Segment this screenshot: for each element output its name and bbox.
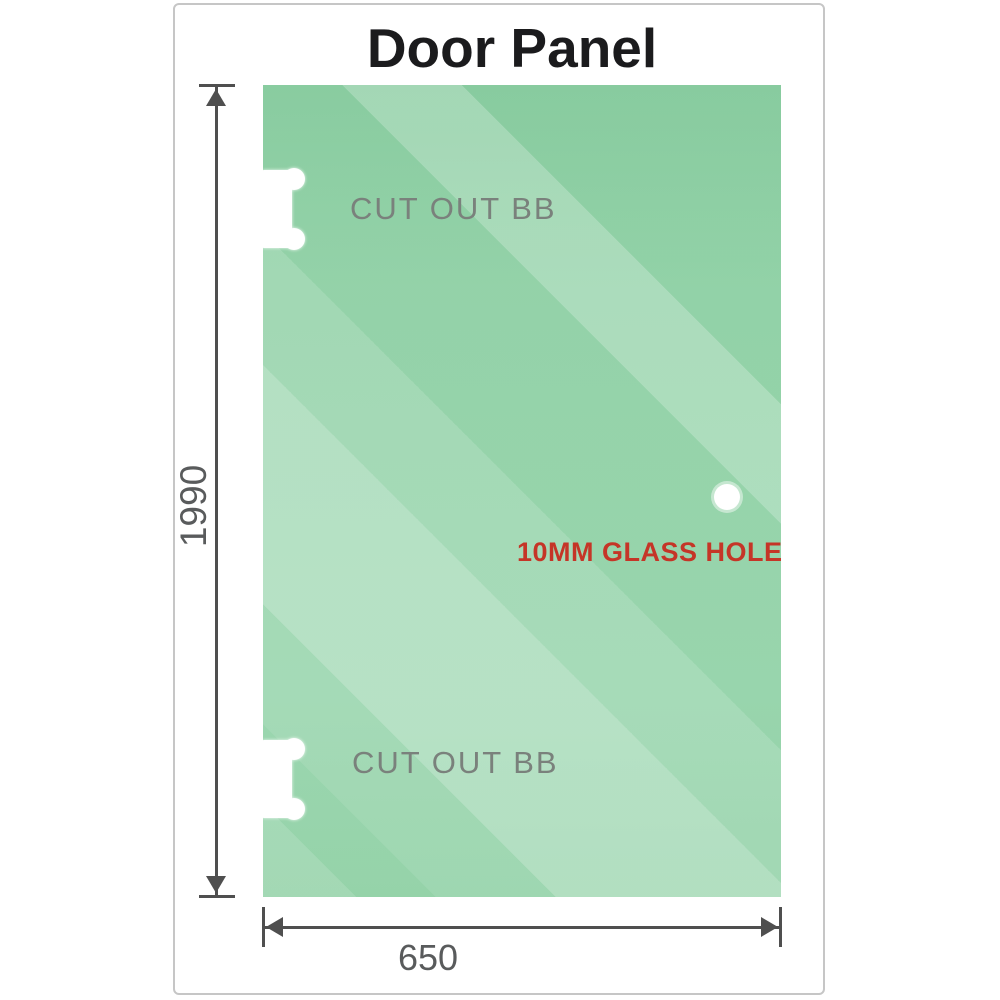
- hinge-cutout-top-icon: [263, 166, 309, 252]
- glass-hole-label: 10MM GLASS HOLE: [517, 537, 781, 568]
- height-dimension-label: 1990: [173, 436, 215, 576]
- height-dimension-bottom-tick: [199, 895, 235, 898]
- height-dimension-line: [215, 85, 218, 897]
- arrow-down-icon: [206, 876, 226, 893]
- width-dimension-left-tick: [262, 907, 265, 947]
- height-dimension-top-tick: [199, 84, 235, 87]
- width-dimension: 650: [263, 907, 781, 967]
- width-dimension-right-tick: [779, 907, 782, 947]
- glass-panel: CUT OUT BB CUT OUT BB 10MM GLASS HOLE: [263, 85, 781, 897]
- arrow-left-icon: [266, 917, 283, 937]
- glass-hole-icon: [714, 484, 740, 510]
- hinge-cutout-bottom-icon: [263, 736, 309, 822]
- page-title: Door Panel: [173, 18, 827, 79]
- cutout-top-label: CUT OUT BB: [350, 191, 557, 227]
- cutout-bottom-label: CUT OUT BB: [352, 745, 559, 781]
- door-panel-diagram: Door Panel CUT OUT BB CUT OUT BB 10MM GL…: [0, 0, 1000, 1000]
- width-dimension-label: 650: [378, 937, 478, 979]
- arrow-right-icon: [761, 917, 778, 937]
- height-dimension: 1990: [199, 85, 235, 897]
- width-dimension-line: [263, 926, 781, 929]
- arrow-up-icon: [206, 89, 226, 106]
